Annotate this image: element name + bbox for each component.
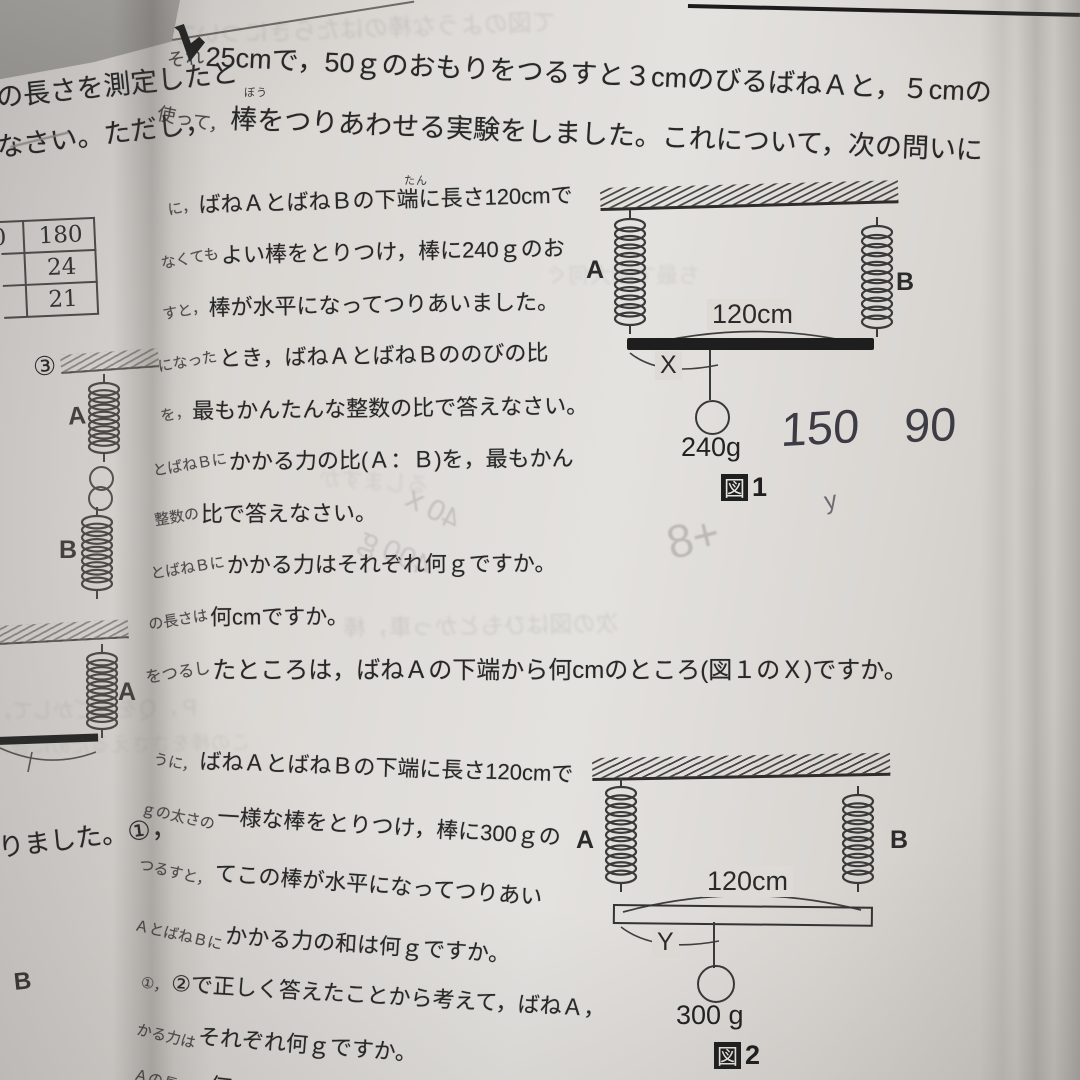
- left-stray-b: B: [13, 967, 33, 997]
- line-frag: になった: [156, 345, 219, 376]
- fig2-weight-label: 300 g: [676, 1000, 744, 1031]
- line-frag: に，: [166, 194, 199, 220]
- line-main: 25cmで，50ｇのおもりをつるすと３cmのびるばねＡと，５cmの: [205, 42, 992, 108]
- line-main: 棒をつりあわせる実験をしました。これについて，次の問いに: [230, 104, 984, 166]
- fig1-length-label: 120cm: [707, 299, 798, 330]
- line-frag: すと，: [161, 296, 208, 324]
- spring-coil: [87, 374, 121, 462]
- line-frag: とばねＢに: [149, 551, 226, 584]
- left-table: 0 180 24 21: [0, 217, 99, 318]
- line-frag: 使って，: [155, 100, 230, 140]
- handwritten-small-mark: y: [822, 486, 839, 517]
- line-main: 比で答えなさい。: [201, 500, 377, 526]
- fig1-caption-num: 1: [752, 472, 767, 503]
- ceiling-hatch: [0, 619, 129, 645]
- q1-line: なくてもよい棒をとりつけ，棒に240ｇのお: [160, 231, 565, 271]
- q2-line: Ａの長さは何: [132, 1060, 234, 1080]
- q1-line: の長さは何cmですか。: [148, 599, 349, 632]
- intro-line: 使って，棒をつりあわせる実験をしました。これについて，次の問いに: [156, 94, 983, 168]
- item3-marker: ③: [32, 350, 57, 383]
- furigana-tan: たん: [404, 172, 428, 188]
- fig2-ceiling-hatch: [592, 753, 890, 781]
- line-main: 最もかんたんな整数の比で答えなさい。: [192, 393, 588, 424]
- line-main: よい棒をとりつけ，棒に240ｇのお: [221, 236, 565, 268]
- line-main: てこの棒が水平になってつりあい: [214, 861, 543, 910]
- ghost-text: 次の図はひもとかっ車，棒: [342, 604, 618, 643]
- line-frag: とばねＢに: [151, 448, 228, 481]
- fig1-caption: 図 1: [721, 472, 767, 503]
- q1-line: すと，棒が水平になってつりあいました。: [162, 284, 559, 323]
- fig2-bar: [613, 904, 873, 927]
- fig2-spring-a-label: A: [576, 826, 594, 855]
- fig1-caption-fig: 図: [721, 474, 748, 501]
- q2-line: ｇの太さの一様な棒をとりつけ，棒に300ｇの: [140, 794, 562, 852]
- fig1-ceiling-hatch: [600, 180, 898, 211]
- line-main: それぞれ何ｇですか。: [197, 1024, 418, 1066]
- handwritten-answer-2: 90: [903, 396, 957, 453]
- fig1-string: [709, 350, 711, 400]
- fig1-weight-circle: [695, 400, 730, 435]
- line-frag: かる力は: [135, 1019, 198, 1053]
- ghost-text: ち最で回大何ぐ: [546, 258, 700, 290]
- handwritten-answer-1: 150: [780, 398, 860, 457]
- furigana-bou: ぼう: [244, 84, 268, 100]
- line-frag: つるすと，: [137, 853, 214, 890]
- line-frag: の長さは: [147, 604, 209, 634]
- table-cell: 21: [48, 286, 78, 313]
- line-frag: Ａの長さは: [131, 1063, 209, 1080]
- left-spring-a-label: A: [67, 401, 87, 431]
- printed-header-rule: [688, 4, 1080, 16]
- line-main: 何: [208, 1073, 233, 1080]
- q1-line: になったとき，ばねＡとばねＢののびの比: [157, 335, 549, 374]
- fig1-x-label: X: [655, 351, 682, 380]
- left-spring-b-label: B: [59, 536, 77, 565]
- line-frag: ①，: [139, 971, 171, 998]
- fig2-caption-fig: 図: [714, 1042, 741, 1069]
- fig2-weight-circle: [697, 965, 735, 1003]
- q2-line: ＡとばねＢにかかる力の和は何ｇですか。: [133, 912, 512, 969]
- ghost-text: て図のような棒のはたらきについて: [172, 2, 556, 50]
- fig2-spring-a: [604, 778, 638, 892]
- pencil-ghost: +8: [661, 505, 725, 570]
- fig2-caption-num: 2: [745, 1040, 760, 1071]
- ceiling-hatch: [60, 348, 159, 374]
- fig1-bar: [627, 338, 874, 350]
- fig2-y-label: Y: [652, 928, 679, 957]
- line-main: 一様な棒をとりつけ，棒に300ｇの: [217, 804, 562, 850]
- right-page-edge-bands: [980, 0, 1080, 1080]
- fig1-spring-b-label: B: [896, 268, 914, 297]
- line-frag: なくても: [159, 242, 220, 273]
- line-frag: ＡとばねＢに: [132, 914, 224, 954]
- q1-line: に，ばねＡとばねＢの下端に長さ120cmで: [167, 177, 573, 220]
- table-cell: 180: [38, 221, 83, 249]
- book-photo: の長さを測定したと なさい。ただし， 0 180 24 21 ③ A B A り…: [0, 0, 1080, 1080]
- line-main: ②で正しく答えたことから考えて，ばねＡ，: [171, 971, 607, 1022]
- q1-line: をつるしたところは，ばねＡの下端から何cmのところ(図１のＸ)ですか。: [145, 650, 908, 685]
- line-main: ばねＡとばねＢの下端に長さ120cmで: [199, 749, 574, 787]
- q2-line: つるすと，てこの棒が水平になってつりあい: [138, 850, 544, 912]
- ghost-text: この棒をささえるために答えなさい: [0, 726, 251, 761]
- q1-line: 整数の比で答えなさい。: [154, 495, 377, 529]
- fig2-spring-b-label: B: [890, 826, 908, 855]
- q1-line: を，最もかんたんな整数の比で答えなさい。: [160, 388, 588, 426]
- spring-coil: [80, 507, 114, 599]
- fig2-length-label: 120cm: [702, 866, 793, 897]
- line-main: 何cmですか。: [210, 604, 349, 630]
- fig2-string: [713, 922, 715, 968]
- table-cell: 24: [47, 254, 77, 281]
- line-frag: 整数の: [153, 502, 201, 530]
- line-main: とき，ばねＡとばねＢののびの比: [219, 340, 549, 371]
- fig1-weight-label: 240g: [681, 432, 741, 463]
- q2-line: かる力はそれぞれ何ｇですか。: [135, 1014, 418, 1068]
- line-main: たところは，ばねＡの下端から何cmのところ(図１のＸ)ですか。: [212, 657, 908, 684]
- fig2-caption: 図 2: [714, 1040, 760, 1071]
- line-frag: をつるし: [144, 654, 212, 688]
- line-frag: を，: [159, 400, 192, 426]
- line-main: 棒が水平になってつりあいました。: [208, 289, 559, 320]
- line-main: かかる力の和は何ｇですか。: [225, 923, 512, 967]
- table-cell-partial: 0: [0, 225, 7, 252]
- line-main: ばねＡとばねＢの下端に長さ120cmで: [198, 182, 573, 217]
- fig2-spring-b: [841, 786, 875, 892]
- q2-line: ①，②で正しく答えたことから考えて，ばねＡ，: [140, 964, 607, 1024]
